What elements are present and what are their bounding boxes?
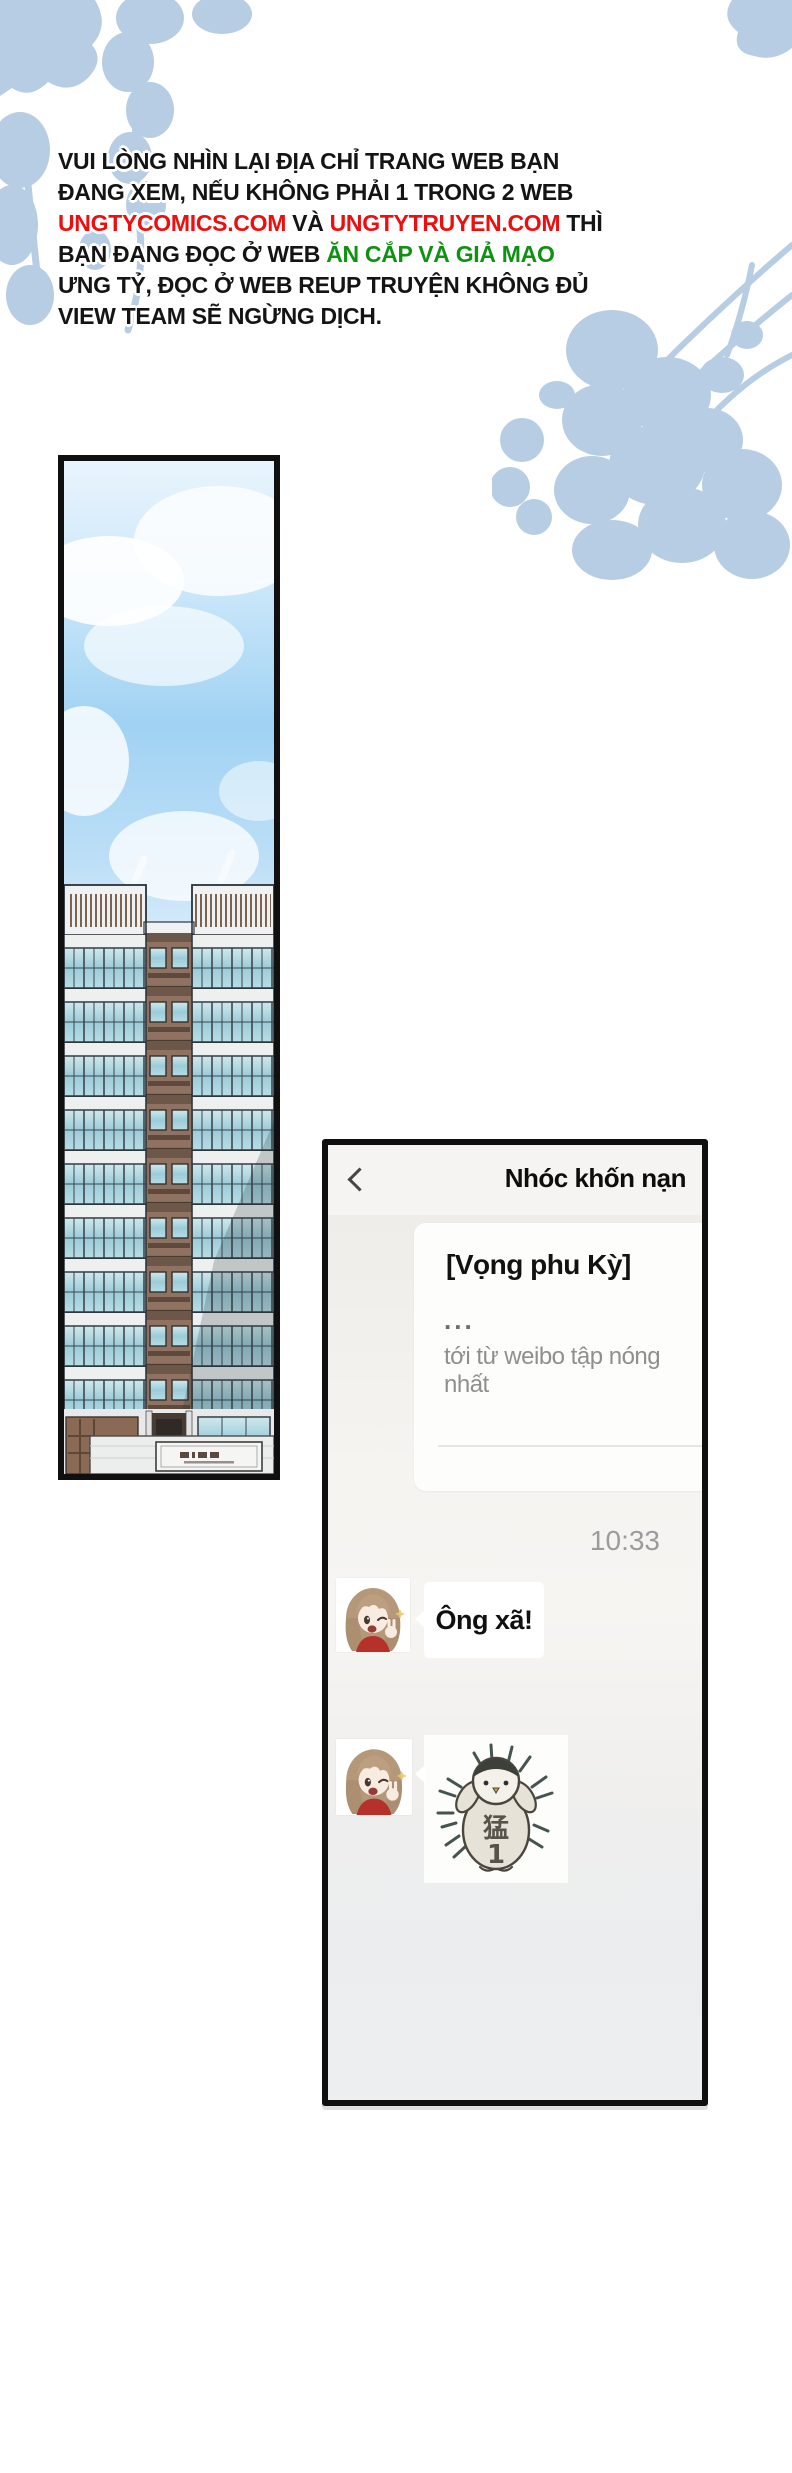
divider	[438, 1445, 702, 1447]
building-illustration	[64, 461, 274, 1474]
notice-line-5: ƯNG TỶ, ĐỌC Ở WEB REUP TRUYỆN KHÔNG ĐỦ	[58, 270, 758, 301]
chat-header: Nhóc khốn nạn	[328, 1145, 702, 1215]
foliage-top-right	[692, 0, 792, 70]
notice-line-3: UNGTYCOMICS.COM VÀ UNGTYTRUYEN.COM THÌ	[58, 208, 758, 239]
chat-title: Nhóc khốn nạn	[505, 1163, 686, 1194]
shared-post-ellipsis: ...	[444, 1305, 475, 1336]
notice-line-6: VIEW TEAM SẼ NGỪNG DỊCH.	[58, 301, 758, 332]
site-link-2: UNGTYTRUYEN.COM	[330, 210, 561, 236]
chat-bubble: Ông xã!	[424, 1582, 544, 1658]
back-button[interactable]	[344, 1167, 370, 1193]
girl-winking-avatar-icon	[336, 1578, 410, 1652]
girl-winking-avatar-icon	[336, 1739, 412, 1815]
notice-line-4: BẠN ĐANG ĐỌC Ở WEB ĂN CẮP VÀ GIẢ MẠO	[58, 239, 758, 270]
notice-line-2: ĐANG XEM, NẾU KHÔNG PHẢI 1 TRONG 2 WEB	[58, 177, 758, 208]
front-wall	[90, 1436, 274, 1474]
avatar	[336, 1739, 412, 1815]
message-row-text: Ông xã!	[336, 1578, 676, 1662]
message-text: Ông xã!	[435, 1605, 532, 1636]
center-column	[146, 933, 192, 1411]
avatar	[336, 1578, 410, 1652]
chevron-left-icon	[347, 1167, 371, 1191]
notice-line-1: VUI LÒNG NHÌN LẠI ĐỊA CHỈ TRANG WEB BẠN	[58, 146, 758, 177]
chat-panel: Nhóc khốn nạn [Vọng phu Kỳ] ... tới từ w…	[322, 1139, 708, 2106]
site-link-1: UNGTYCOMICS.COM	[58, 210, 286, 236]
shared-post-source: tới từ weibo tập nóng nhất	[444, 1343, 702, 1399]
building-panel	[58, 455, 280, 1480]
timestamp: 10:33	[590, 1525, 660, 1557]
shared-post-card[interactable]: [Vọng phu Kỳ] ... tới từ weibo tập nóng …	[414, 1223, 702, 1491]
message-row-sticker: 猛 1	[336, 1735, 676, 1885]
left-tower	[64, 935, 146, 1411]
sticker-number: 1	[487, 1840, 505, 1870]
anti-piracy-notice: VUI LÒNG NHÌN LẠI ĐỊA CHỈ TRANG WEB BẠN …	[58, 146, 758, 332]
shared-post-title: [Vọng phu Kỳ]	[446, 1249, 631, 1281]
penguin-sticker-icon: 猛 1	[424, 1735, 568, 1883]
sticker-message: 猛 1	[424, 1735, 568, 1883]
comic-page: { "notice": { "line1": "VUI LÒNG NHÌN LẠ…	[0, 0, 792, 2473]
notice-alert-text: ĂN CẮP VÀ GIẢ MẠO	[326, 241, 554, 267]
